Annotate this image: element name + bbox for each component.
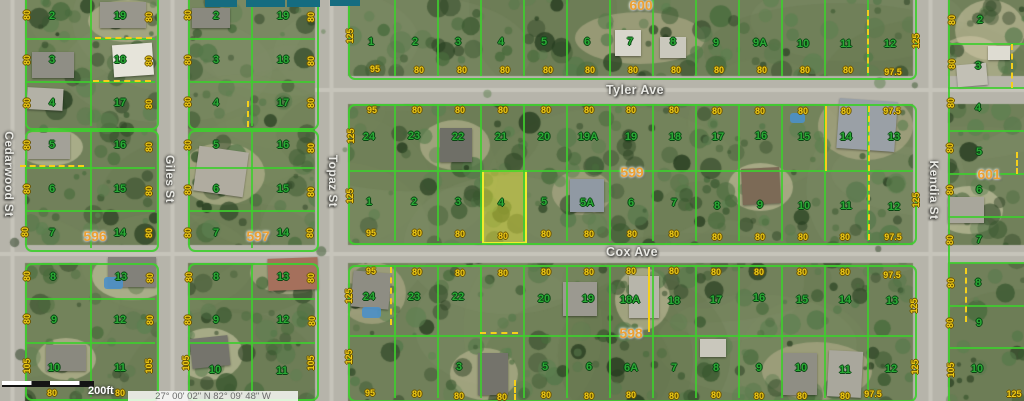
survey-line-yellow (825, 106, 827, 171)
lot-number-label: 9 (756, 362, 762, 374)
lot-number-label: 8 (213, 271, 219, 283)
lot-number-label: 5 (213, 139, 219, 151)
lot-dimension-label: 80 (541, 229, 551, 239)
lot-dimension-label: 80 (669, 229, 679, 239)
lot-dimension-label: 80 (412, 228, 422, 238)
parcel-boundary-line (824, 265, 826, 398)
lot-dimension-label: 80 (497, 392, 507, 401)
parcel-boundary-line (188, 298, 315, 300)
parcel-boundary-line (948, 347, 1024, 349)
lot-dimension-label: 80 (144, 12, 154, 22)
survey-line-yellow (93, 80, 151, 82)
lot-dimension-label: 80 (711, 267, 721, 277)
lot-dimension-label: 80 (797, 391, 807, 401)
lot-dimension-label: 80 (500, 65, 510, 75)
lot-dimension-label: 80 (306, 56, 316, 66)
lot-dimension-label: 80 (498, 231, 508, 241)
survey-line-yellow (867, 10, 869, 73)
lot-dimension-label: 97.5 (883, 106, 901, 116)
lot-number-label: 22 (452, 131, 464, 143)
survey-line-yellow (1011, 44, 1013, 88)
lot-dimension-label: 80 (585, 65, 595, 75)
block-number-label: 599 (620, 164, 643, 180)
lot-number-label: 18A (620, 294, 640, 306)
lot-number-label: 4 (49, 97, 55, 109)
street-name-label: Giles St (163, 155, 177, 203)
block-number-label: 598 (619, 325, 642, 341)
lot-dimension-label: 80 (22, 10, 32, 20)
lot-number-label: 2 (977, 14, 983, 26)
lot-dimension-label: 80 (626, 266, 636, 276)
lot-dimension-label: 95 (366, 228, 376, 238)
lot-number-label: 3 (213, 54, 219, 66)
block-number-label: 601 (977, 166, 1000, 182)
lot-dimension-label: 80 (144, 228, 154, 238)
lot-dimension-label: 80 (306, 98, 316, 108)
lot-number-label: 23 (408, 130, 420, 142)
survey-line-yellow (648, 267, 650, 332)
parcel-boundary-line (25, 298, 155, 300)
lot-number-label: 17 (710, 294, 722, 306)
lot-dimension-label: 80 (22, 55, 32, 65)
lot-dimension-label: 80 (455, 229, 465, 239)
lot-number-label: 11 (839, 364, 851, 376)
lot-number-label: 10 (48, 362, 60, 374)
lot-number-label: 12 (277, 314, 289, 326)
lot-dimension-label: 105 (144, 358, 154, 373)
lot-dimension-label: 97.5 (884, 67, 902, 77)
lot-number-label: 20 (538, 293, 550, 305)
lot-dimension-label: 80 (183, 315, 193, 325)
lot-dimension-label: 80 (584, 229, 594, 239)
lot-number-label: 15 (114, 183, 126, 195)
parcel-boundary-line (25, 342, 155, 344)
parcel-overlay: 95808080808080808080808097.5958080808080… (0, 0, 1024, 401)
parcel-boundary-line (566, 0, 568, 76)
parcel-boundary-line (609, 104, 611, 241)
lot-number-label: 18 (277, 54, 289, 66)
lot-dimension-label: 80 (754, 391, 764, 401)
lot-dimension-label: 80 (543, 65, 553, 75)
lot-number-label: 7 (49, 227, 55, 239)
lot-number-label: 19 (625, 131, 637, 143)
lot-dimension-label: 80 (584, 267, 594, 277)
parcel-block-outline (188, 0, 319, 130)
lot-number-label: 14 (839, 294, 851, 306)
lot-number-label: 5 (542, 361, 548, 373)
lot-dimension-label: 80 (754, 267, 764, 277)
lot-number-label: 18 (669, 131, 681, 143)
lot-number-label: 13 (888, 131, 900, 143)
parcel-boundary-line (781, 0, 783, 76)
lot-dimension-label: 105 (946, 362, 956, 377)
lot-number-label: 6 (213, 183, 219, 195)
lot-dimension-label: 80 (145, 315, 155, 325)
lot-dimension-label: 80 (945, 185, 955, 195)
parcel-boundary-line (738, 265, 740, 398)
lot-dimension-label: 125 (345, 188, 355, 203)
lot-dimension-label: 80 (669, 105, 679, 115)
lot-dimension-label: 80 (945, 143, 955, 153)
street-name-label: Cox Ave (606, 245, 658, 259)
lot-number-label: 19A (578, 131, 598, 143)
lot-dimension-label: 80 (144, 186, 154, 196)
lot-dimension-label: 80 (840, 232, 850, 242)
lot-number-label: 19 (114, 10, 126, 22)
street-name-label: Kendia St (927, 161, 941, 220)
lot-dimension-label: 80 (22, 271, 32, 281)
parcel-boundary-line (695, 0, 697, 76)
lot-number-label: 5 (976, 146, 982, 158)
lot-dimension-label: 125 (346, 128, 356, 143)
lot-dimension-label: 80 (306, 187, 316, 197)
lot-number-label: 12 (114, 314, 126, 326)
lot-dimension-label: 80 (115, 388, 125, 398)
lot-number-label: 11 (840, 200, 852, 212)
parcel-boundary-line (738, 0, 740, 76)
redaction-box (246, 0, 285, 7)
lot-dimension-label: 80 (946, 98, 956, 108)
lot-dimension-label: 80 (798, 106, 808, 116)
lot-dimension-label: 80 (584, 391, 594, 401)
lot-dimension-label: 80 (626, 390, 636, 400)
lot-dimension-label: 80 (798, 232, 808, 242)
parcel-boundary-line (394, 265, 396, 398)
lot-dimension-label: 80 (841, 106, 851, 116)
parcel-boundary-line (523, 104, 525, 241)
parcel-boundary-line (948, 130, 1024, 132)
lot-number-label: 17 (277, 97, 289, 109)
lot-number-label: 21 (495, 131, 507, 143)
parcel-boundary-line (609, 0, 611, 76)
lot-number-label: 7 (976, 234, 982, 246)
lot-number-label: 14 (840, 131, 852, 143)
lot-number-label: 9 (51, 314, 57, 326)
lot-number-label: 7 (671, 362, 677, 374)
lot-number-label: 3 (455, 36, 461, 48)
lot-dimension-label: 125 (345, 28, 355, 43)
parcel-boundary-line (652, 104, 654, 241)
lot-number-label: 8 (714, 200, 720, 212)
survey-line-yellow (480, 332, 518, 334)
parcel-boundary-line (738, 104, 740, 241)
lot-dimension-label: 80 (22, 140, 32, 150)
lot-number-label: 18 (114, 54, 126, 66)
lot-dimension-label: 95 (367, 105, 377, 115)
lot-dimension-label: 80 (712, 232, 722, 242)
lot-dimension-label: 80 (947, 15, 957, 25)
parcel-boundary-line (781, 265, 783, 398)
lot-dimension-label: 125 (344, 288, 354, 303)
lot-number-label: 16 (114, 139, 126, 151)
parcel-boundary-line (188, 342, 315, 344)
lot-dimension-label: 80 (946, 278, 956, 288)
parcel-boundary-line (566, 104, 568, 241)
lot-dimension-label: 95 (365, 388, 375, 398)
lot-dimension-label: 80 (145, 273, 155, 283)
lot-number-label: 5 (541, 36, 547, 48)
lot-number-label: 8 (50, 271, 56, 283)
lot-number-label: 3 (975, 60, 981, 72)
lot-dimension-label: 125 (911, 33, 921, 48)
parcel-boundary-line (695, 265, 697, 398)
parcel-boundary-line (188, 210, 315, 212)
lot-dimension-label: 80 (671, 65, 681, 75)
parcel-boundary-line (948, 305, 1024, 307)
lot-number-label: 10 (795, 362, 807, 374)
lot-dimension-label: 80 (498, 268, 508, 278)
lot-number-label: 5A (580, 197, 594, 209)
lot-number-label: 2 (213, 10, 219, 22)
lot-dimension-label: 80 (669, 391, 679, 401)
parcel-boundary-line (394, 104, 396, 241)
lot-dimension-label: 80 (306, 12, 316, 22)
scale-label: 200ft (88, 385, 114, 397)
lot-number-label: 20 (538, 131, 550, 143)
survey-line-yellow (965, 268, 967, 322)
lot-number-label: 13 (115, 271, 127, 283)
parcel-boundary-line (523, 0, 525, 76)
lot-number-label: 6 (586, 361, 592, 373)
lot-dimension-label: 80 (541, 390, 551, 400)
parcel-boundary-line (188, 167, 315, 169)
lot-dimension-label: 80 (843, 65, 853, 75)
lot-dimension-label: 80 (840, 391, 850, 401)
lot-dimension-label: 80 (498, 105, 508, 115)
lot-dimension-label: 80 (626, 105, 636, 115)
lot-dimension-label: 80 (627, 229, 637, 239)
lot-dimension-label: 80 (669, 266, 679, 276)
parcel-block-outline (188, 263, 319, 401)
lot-number-label: 10 (971, 363, 983, 375)
lot-number-label: 11 (114, 362, 126, 374)
lot-dimension-label: 80 (144, 56, 154, 66)
lot-number-label: 15 (798, 131, 810, 143)
lot-dimension-label: 125 (909, 298, 919, 313)
redaction-box (330, 0, 360, 6)
lot-dimension-label: 125 (1006, 389, 1021, 399)
lot-number-label: 9A (753, 37, 767, 49)
lot-number-label: 5 (49, 139, 55, 151)
lot-number-label: 3 (456, 361, 462, 373)
lot-dimension-label: 80 (840, 267, 850, 277)
lot-number-label: 10 (798, 200, 810, 212)
lot-number-label: 4 (213, 97, 219, 109)
lot-number-label: 13 (277, 271, 289, 283)
survey-line-yellow (247, 101, 249, 127)
coordinates-readout: 27° 00' 02" N 82° 09' 48" W (128, 391, 298, 401)
survey-line-yellow (514, 380, 516, 400)
lot-number-label: 10 (797, 38, 809, 50)
lot-number-label: 9 (713, 37, 719, 49)
lot-dimension-label: 105 (22, 358, 32, 373)
street-name-label: Topaz St (326, 155, 340, 207)
parcel-boundary-line (251, 0, 253, 126)
lot-number-label: 4 (975, 102, 981, 114)
parcel-boundary-line (566, 265, 568, 398)
lot-number-label: 12 (884, 38, 896, 50)
lot-number-label: 17 (712, 131, 724, 143)
parcel-boundary-line (480, 104, 482, 241)
lot-dimension-label: 125 (910, 359, 920, 374)
street-name-label: Cedarwood St (2, 131, 16, 216)
lot-number-label: 9 (213, 314, 219, 326)
lot-dimension-label: 95 (366, 266, 376, 276)
parcel-boundary-line (90, 263, 92, 397)
lot-number-label: 23 (408, 291, 420, 303)
lot-dimension-label: 125 (344, 349, 354, 364)
lot-dimension-label: 80 (183, 185, 193, 195)
parcel-boundary-line (90, 0, 92, 126)
survey-line-yellow (95, 37, 152, 39)
lot-number-label: 8 (975, 277, 981, 289)
lot-dimension-label: 80 (22, 184, 32, 194)
parcel-boundary-line (251, 263, 253, 397)
lot-dimension-label: 105 (306, 355, 316, 370)
lot-number-label: 7 (213, 227, 219, 239)
lot-dimension-label: 80 (47, 388, 57, 398)
lot-number-label: 6 (628, 197, 634, 209)
survey-line-yellow (1016, 152, 1018, 174)
lot-dimension-label: 80 (711, 390, 721, 400)
lot-dimension-label: 80 (945, 318, 955, 328)
lot-number-label: 12 (885, 363, 897, 375)
parcel-boundary-line (948, 262, 1024, 264)
lot-dimension-label: 97.5 (864, 389, 882, 399)
lot-dimension-label: 80 (800, 65, 810, 75)
parcel-boundary-line (437, 265, 439, 398)
lot-dimension-label: 80 (305, 228, 315, 238)
lot-number-label: 16 (277, 139, 289, 151)
lot-number-label: 19 (582, 293, 594, 305)
lot-number-label: 6A (624, 362, 638, 374)
lot-number-label: 2 (412, 36, 418, 48)
aerial-plat-map[interactable]: 95808080808080808080808097.5958080808080… (0, 0, 1024, 401)
parcel-boundary-line (25, 167, 155, 169)
lot-number-label: 11 (276, 365, 288, 377)
survey-line-yellow (20, 165, 84, 167)
lot-number-label: 3 (455, 196, 461, 208)
parcel-boundary-line (652, 265, 654, 398)
lot-number-label: 6 (49, 183, 55, 195)
lot-dimension-label: 80 (755, 232, 765, 242)
lot-dimension-label: 80 (307, 316, 317, 326)
lot-number-label: 8 (670, 36, 676, 48)
lot-number-label: 11 (840, 38, 852, 50)
block-number-label: 600 (629, 0, 652, 13)
lot-dimension-label: 80 (628, 65, 638, 75)
block-number-label: 597 (246, 228, 269, 244)
survey-line-yellow (390, 267, 392, 325)
lot-dimension-label: 80 (183, 55, 193, 65)
lot-number-label: 10 (209, 364, 221, 376)
lot-number-label: 24 (363, 291, 375, 303)
lot-dimension-label: 80 (22, 314, 32, 324)
lot-number-label: 22 (452, 291, 464, 303)
lot-dimension-label: 80 (541, 267, 551, 277)
lot-dimension-label: 80 (455, 268, 465, 278)
lot-number-label: 2 (411, 196, 417, 208)
lot-number-label: 3 (49, 54, 55, 66)
parcel-boundary-line (781, 104, 783, 241)
lot-number-label: 1 (368, 36, 374, 48)
lot-dimension-label: 80 (144, 99, 154, 109)
lot-number-label: 8 (713, 362, 719, 374)
parcel-boundary-line (948, 216, 1024, 218)
lot-dimension-label: 80 (947, 59, 957, 69)
parcel-boundary-line (695, 104, 697, 241)
redaction-box (205, 0, 237, 7)
lot-number-label: 6 (584, 36, 590, 48)
street-name-label: Tyler Ave (606, 83, 664, 97)
lot-dimension-label: 80 (945, 235, 955, 245)
parcel-boundary-line (480, 0, 482, 76)
lot-dimension-label: 80 (183, 97, 193, 107)
parcel-boundary-line (609, 265, 611, 398)
lot-dimension-label: 125 (911, 192, 921, 207)
parcel-boundary-line (25, 210, 155, 212)
lot-dimension-label: 80 (714, 65, 724, 75)
lot-number-label: 16 (755, 130, 767, 142)
lot-dimension-label: 80 (412, 389, 422, 399)
parcel-boundary-line (867, 265, 869, 398)
lot-number-label: 15 (796, 294, 808, 306)
lot-dimension-label: 80 (412, 267, 422, 277)
lot-number-label: 18 (668, 295, 680, 307)
lot-number-label: 19 (277, 10, 289, 22)
lot-number-label: 7 (671, 197, 677, 209)
lot-dimension-label: 80 (412, 105, 422, 115)
lot-number-label: 14 (114, 227, 126, 239)
lot-dimension-label: 80 (20, 227, 30, 237)
lot-number-label: 7 (627, 36, 633, 48)
survey-line-yellow (868, 106, 870, 240)
scale-bar (2, 381, 94, 387)
parcel-block-outline (25, 0, 159, 130)
lot-number-label: 24 (363, 131, 375, 143)
lot-dimension-label: 80 (306, 273, 316, 283)
lot-dimension-label: 80 (755, 106, 765, 116)
lot-dimension-label: 80 (306, 143, 316, 153)
lot-dimension-label: 80 (184, 272, 194, 282)
lot-number-label: 9 (976, 317, 982, 329)
lot-dimension-label: 80 (455, 105, 465, 115)
lot-number-label: 9 (757, 199, 763, 211)
lot-number-label: 1 (366, 196, 372, 208)
lot-dimension-label: 80 (414, 65, 424, 75)
lot-dimension-label: 80 (457, 65, 467, 75)
parcel-boundary-line (437, 104, 439, 241)
lot-number-label: 15 (277, 183, 289, 195)
block-number-label: 596 (83, 228, 106, 244)
lot-number-label: 4 (498, 197, 504, 209)
parcel-boundary-line (188, 81, 315, 83)
redaction-box (287, 0, 320, 7)
parcel-boundary-line (824, 0, 826, 76)
lot-number-label: 2 (49, 10, 55, 22)
parcel-boundary-line (437, 0, 439, 76)
lot-dimension-label: 80 (541, 105, 551, 115)
lot-dimension-label: 80 (183, 140, 193, 150)
lot-dimension-label: 95 (370, 64, 380, 74)
lot-number-label: 5 (541, 196, 547, 208)
lot-dimension-label: 80 (454, 391, 464, 401)
parcel-boundary-line (188, 38, 315, 40)
lot-dimension-label: 80 (797, 267, 807, 277)
lot-dimension-label: 105 (181, 355, 191, 370)
lot-dimension-label: 80 (584, 105, 594, 115)
lot-number-label: 14 (277, 227, 289, 239)
